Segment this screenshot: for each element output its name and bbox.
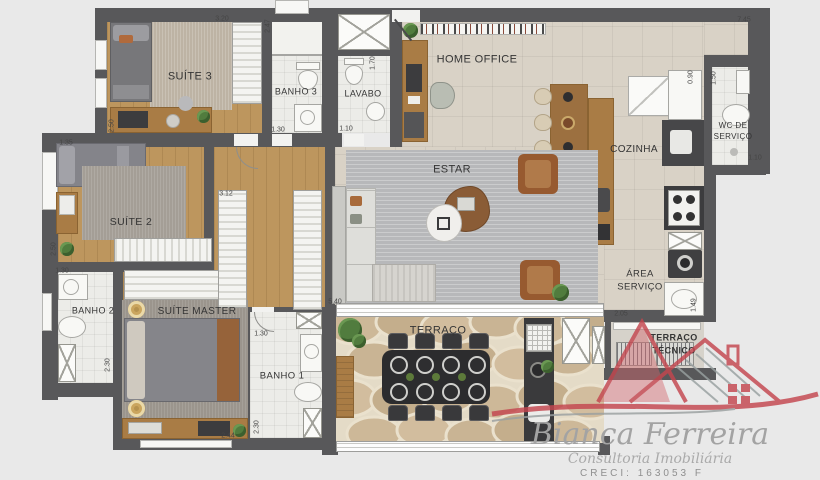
measurement-label: 5.40 (328, 299, 342, 306)
wc-shower-drain (730, 148, 738, 156)
suite2-pillows (59, 146, 75, 184)
tt-ledge (613, 322, 701, 330)
place-setting (416, 356, 434, 374)
coffee-table-tray (457, 197, 475, 211)
window (95, 40, 107, 70)
lavabo-toilet-tank (344, 58, 364, 65)
terraco-chair (442, 405, 462, 421)
measurement-label: 1.30 (55, 268, 69, 275)
suite3-tv (118, 111, 148, 128)
room-label-terraco-tecnico-1: TERRAÇO (650, 334, 697, 343)
room-label-estar: ESTAR (433, 165, 471, 176)
banho3-toilet-tank (296, 62, 320, 70)
terraco-chair (469, 333, 489, 349)
place-setting (442, 356, 460, 374)
room-label-terraco-tecnico-2: TÉCNICO (652, 347, 695, 356)
floor-plan-image: SUÍTE 3 BANHO 3 LAVABO HOME OFFICE COZIN… (0, 0, 820, 480)
master-nightstand-lamp (128, 400, 145, 417)
table-plant (458, 373, 466, 381)
room-label-area-servico-2: SERVIÇO (617, 282, 662, 292)
sofa-back (332, 186, 346, 304)
kitchen-dishwasher (668, 232, 702, 250)
measurement-label: 2.30 (254, 420, 261, 434)
measurement-label: 1.10 (748, 155, 762, 162)
suite2-plant (60, 242, 74, 256)
table-plant (432, 373, 440, 381)
banho1-shaft (296, 312, 322, 329)
door-opening (344, 134, 364, 146)
measurement-label: 1.30 (271, 127, 285, 134)
burner (686, 195, 695, 204)
banho1-sink (304, 344, 319, 359)
place-setting (416, 383, 434, 401)
measurement-label: 2.44 (221, 433, 235, 440)
measurement-label: 3.20 (215, 16, 229, 23)
burner (673, 212, 682, 221)
table-plant (406, 373, 414, 381)
room-label-banho2: BANHO 2 (72, 307, 114, 316)
measurement-label: 1.49 (691, 298, 698, 312)
measurement-label: 1.50 (711, 71, 718, 85)
estar-sliding-door (336, 303, 604, 317)
suite3-bed-foot (113, 85, 149, 99)
terraco-chair (469, 405, 489, 421)
home-office-storage (404, 112, 424, 138)
suite3-pouf (178, 96, 193, 111)
terraco-chair (415, 405, 435, 421)
kitchen-sink (670, 130, 692, 154)
banho3-sink (300, 110, 315, 125)
suite3-bed (110, 22, 152, 102)
room-label-area-servico-1: ÁREA (626, 269, 653, 279)
burner (673, 195, 682, 204)
terraco-chair (388, 405, 408, 421)
master-frames (128, 422, 162, 434)
room-label-suite3: SUÍTE 3 (168, 72, 212, 83)
suite3-accent-pillow (119, 35, 133, 43)
technical-shaft (562, 318, 590, 364)
measurement-label: 1.35 (59, 140, 73, 147)
entry-landing (275, 0, 309, 14)
grill (526, 324, 552, 352)
room-label-suite-master: SUÍTE MASTER (158, 307, 237, 317)
wall (322, 300, 336, 455)
dining-chair (534, 88, 552, 105)
place-setting (390, 356, 408, 374)
master-bed-runner (217, 319, 239, 401)
measurement-label: 2.05 (614, 311, 628, 318)
banho2-toilet (58, 316, 86, 338)
dining-plate (563, 92, 573, 102)
apartment-floor-plan: SUÍTE 3 BANHO 3 LAVABO HOME OFFICE COZIN… (0, 0, 820, 480)
terraco-railing (336, 441, 600, 452)
room-label-wc-servico-1: WC DE (719, 122, 748, 130)
place-setting (468, 356, 486, 374)
kitchen-cooktop (668, 190, 700, 226)
kitchen-fridge (668, 70, 702, 120)
measurement-label: 2.50 (51, 242, 58, 256)
master-bed (124, 318, 240, 402)
dining-centerpiece (561, 116, 575, 130)
place-setting (468, 383, 486, 401)
grill-plant (541, 360, 554, 373)
door-opening (272, 134, 292, 146)
wall (95, 8, 770, 22)
place-setting (442, 383, 460, 401)
sofa-pillow (350, 214, 362, 224)
shaft (338, 14, 390, 50)
grill-sink (528, 404, 550, 422)
banho1-toilet (294, 382, 322, 402)
banho1-shower (303, 408, 322, 438)
kitchen-cabinet (628, 76, 670, 116)
estar-plant (552, 284, 569, 301)
laundry-tank (664, 282, 704, 316)
suite3-rug (150, 22, 232, 110)
measurement-label: 2.30 (105, 358, 112, 372)
terraco-plant (352, 334, 366, 348)
technical-shaft (592, 326, 605, 364)
wall (322, 8, 338, 147)
measurement-label: 1.70 (370, 56, 377, 70)
room-label-terraco: TERRAÇO (410, 326, 467, 337)
dining-chair (534, 114, 552, 131)
banho2-sink (63, 279, 79, 295)
suite2-wardrobe (114, 238, 212, 262)
suite2-desk-top (59, 195, 75, 215)
wall (704, 165, 766, 175)
washing-machine (668, 250, 702, 278)
suite3-plant (197, 110, 210, 123)
room-label-lavabo: LAVABO (344, 90, 381, 99)
terraco-table (382, 350, 490, 404)
measurement-label: 2.50 (109, 119, 116, 133)
home-office-bookshelf (420, 23, 546, 35)
terraco-chair (388, 333, 408, 349)
measurement-label: 3.12 (219, 191, 233, 198)
room-label-cozinha: COZINHA (610, 145, 658, 155)
armchair-seat (527, 266, 553, 294)
window (42, 293, 52, 331)
room-label-banho3: BANHO 3 (275, 88, 317, 97)
lavabo-sink (366, 102, 385, 121)
place-setting (390, 383, 408, 401)
suite3-chair (166, 114, 180, 128)
door-opening (234, 134, 258, 146)
measurement-label: 2.47 (265, 19, 272, 33)
armchair-seat (525, 160, 551, 188)
measurement-label: 1.10 (339, 126, 353, 133)
measurement-label: 7.45 (737, 17, 751, 24)
sofa-pillow (350, 196, 362, 206)
ac-condenser (616, 342, 652, 366)
window (95, 78, 107, 108)
home-office-monitor (406, 64, 422, 92)
burner (686, 212, 695, 221)
window (140, 440, 232, 448)
closet-wardrobe-left (218, 190, 247, 308)
banho3-shower (272, 22, 322, 55)
wall (748, 14, 770, 174)
room-label-suite2: SUÍTE 2 (110, 217, 152, 228)
measurement-label: 0.90 (688, 70, 695, 84)
floor-cozinha-top (704, 22, 748, 55)
master-nightstand-lamp (128, 301, 145, 318)
room-label-wc-servico-2: SERVIÇO (714, 133, 753, 141)
measurement-label: 1.30 (254, 331, 268, 338)
wall (42, 383, 117, 397)
banho3-shower-glass (272, 54, 322, 56)
home-office-chair (430, 82, 455, 109)
home-office-keyboard (408, 96, 420, 104)
side-table-book (437, 217, 450, 230)
sofa-chaise (372, 264, 436, 302)
suite2-rug (82, 166, 186, 240)
terraco-bench (336, 356, 354, 418)
room-label-banho1: BANHO 1 (260, 371, 305, 381)
master-pillows (127, 321, 145, 399)
side-table (426, 204, 462, 242)
wc-sink (736, 70, 750, 94)
suite3-wardrobe (232, 22, 262, 104)
closet-wardrobe-right (293, 190, 322, 310)
terraco-grill-counter (524, 318, 554, 443)
wall (262, 18, 272, 138)
room-label-home-office: HOME OFFICE (437, 55, 518, 66)
washer-drum (677, 255, 693, 271)
banho2-shower (58, 344, 76, 382)
armchair (518, 154, 558, 194)
